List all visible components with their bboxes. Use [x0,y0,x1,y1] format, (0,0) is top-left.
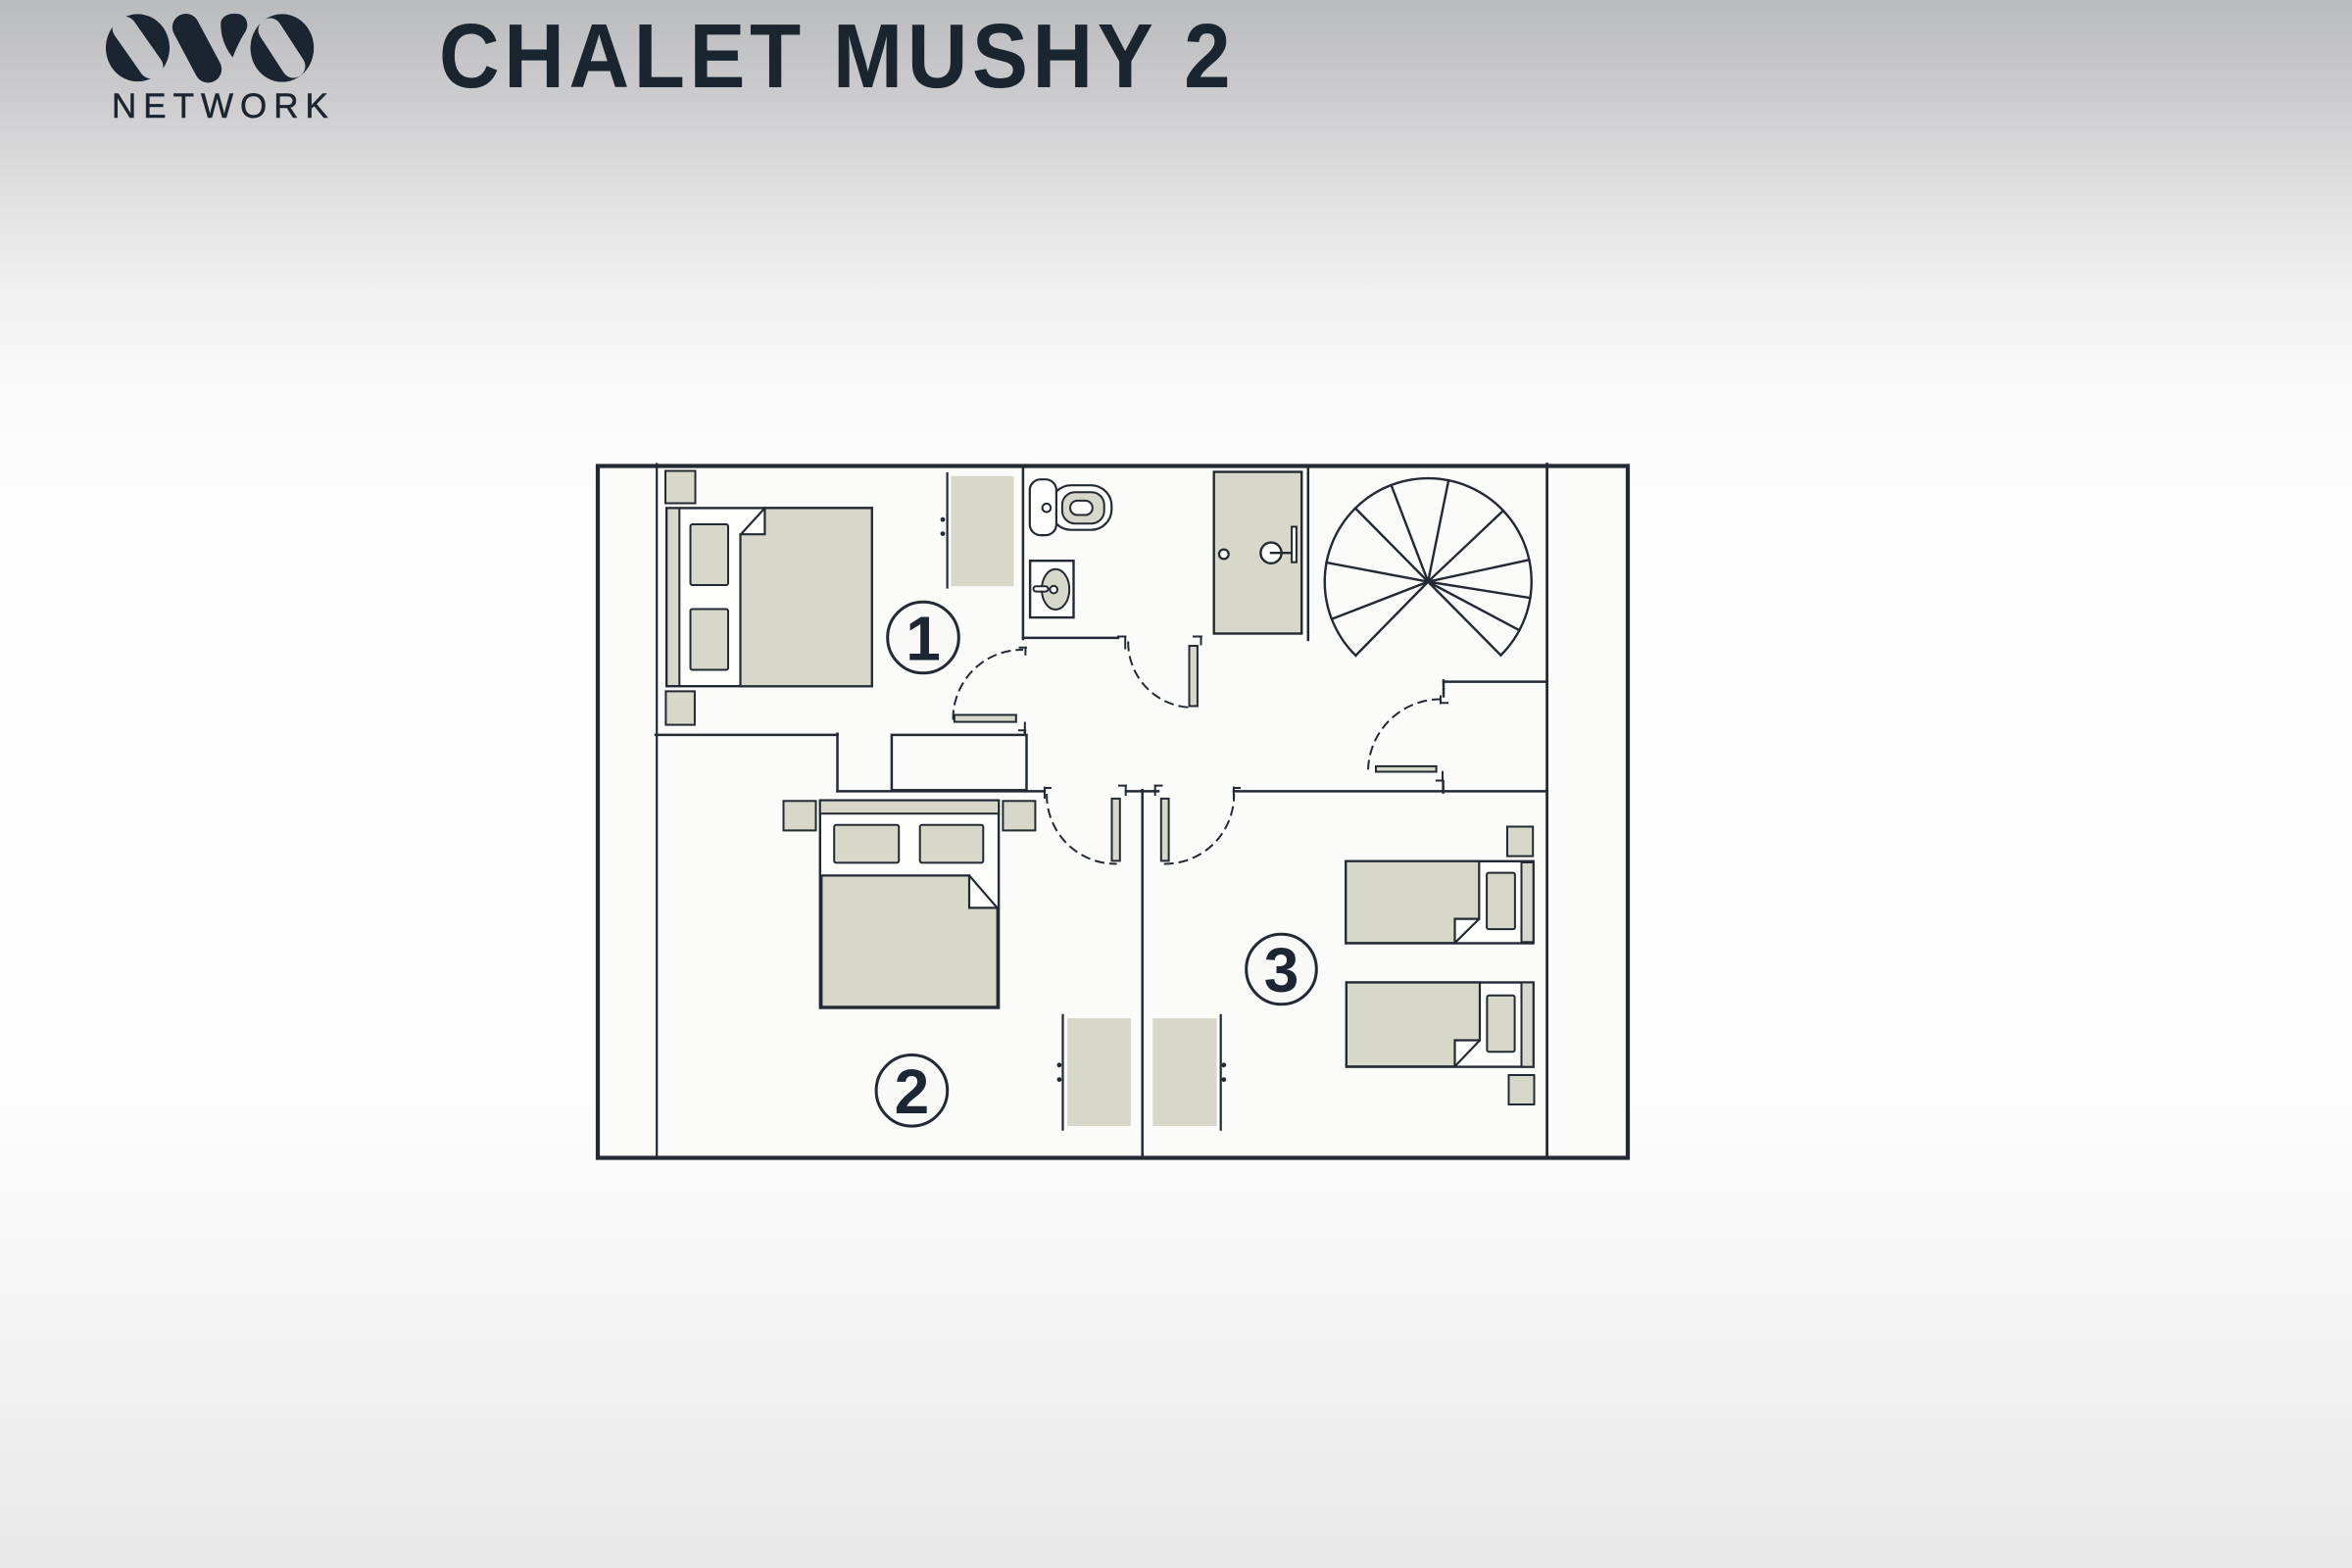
svg-text:3: 3 [1264,935,1299,1005]
svg-text:1: 1 [906,604,941,674]
svg-text:2: 2 [895,1056,930,1127]
